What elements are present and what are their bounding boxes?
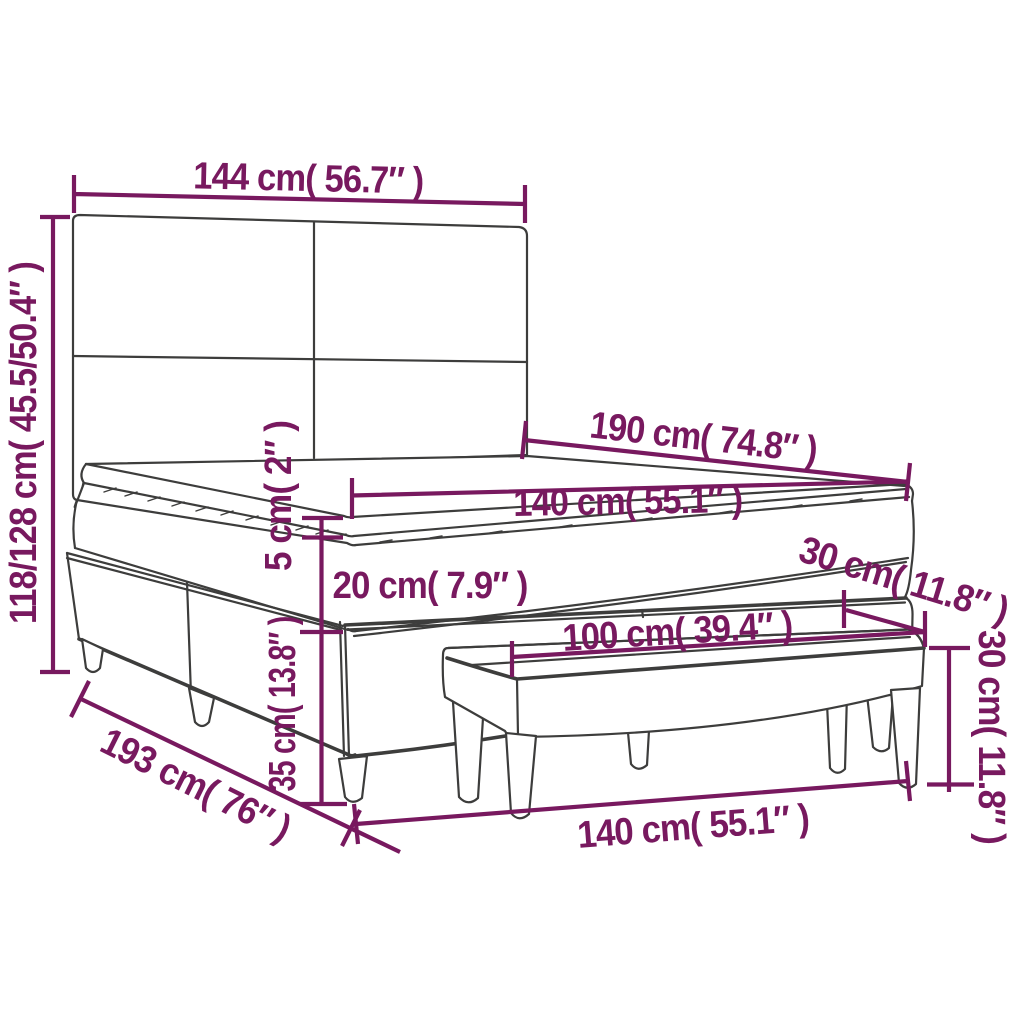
svg-text:144 cm( 56.7″ ): 144 cm( 56.7″ )	[193, 155, 424, 202]
svg-text:118/128 cm( 45.5/50.4″ ): 118/128 cm( 45.5/50.4″ )	[3, 262, 45, 624]
svg-text:30 cm( 11.8″ ): 30 cm( 11.8″ )	[970, 630, 1012, 844]
svg-text:35 cm( 13.8″ ): 35 cm( 13.8″ )	[262, 617, 304, 792]
svg-text:20 cm( 7.9″ ): 20 cm( 7.9″ )	[333, 565, 528, 607]
svg-text:5 cm( 2″ ): 5 cm( 2″ )	[258, 421, 300, 571]
svg-text:140 cm( 55.1″ ): 140 cm( 55.1″ )	[513, 479, 743, 525]
